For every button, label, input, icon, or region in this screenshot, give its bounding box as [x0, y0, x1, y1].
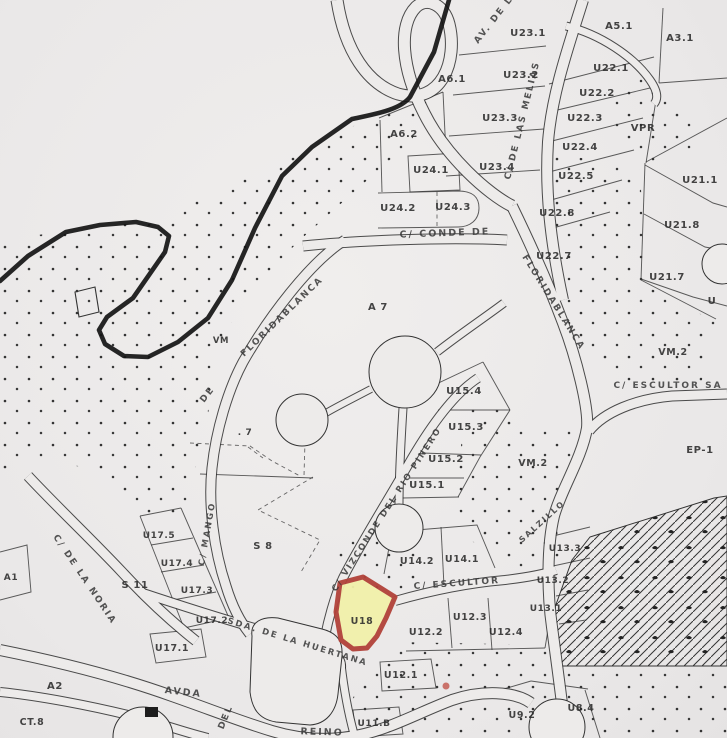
parcel-label: U22.2: [579, 88, 615, 99]
parcel-label: U23.3: [482, 113, 518, 124]
red-dot-marker: [443, 683, 450, 690]
parcel-label: U13.1: [530, 604, 563, 614]
parcel-label: U22.5: [558, 171, 594, 182]
parcel-label: U17.5: [143, 531, 176, 541]
parcel-label: VPR: [631, 123, 656, 134]
street-label: C/ ESCULTOR SA: [613, 381, 722, 391]
dashed-parcel-line: [258, 477, 320, 572]
parcel-label: A1: [4, 573, 18, 583]
parcel-label: U15.2: [428, 454, 464, 465]
parcel-label: U13.3: [549, 544, 582, 554]
parcel-label: A3.1: [666, 33, 694, 44]
parcel-label: U12.1: [384, 670, 418, 681]
parcel-label: U22.3: [567, 113, 603, 124]
building-marker: [145, 707, 158, 717]
dashed-parcel-line: [248, 447, 263, 458]
parcel-label: EP-1: [686, 445, 714, 456]
parcel-label: A5.1: [605, 21, 633, 32]
parcel-label: U15.1: [409, 480, 445, 491]
parcel-label: U17.3: [181, 586, 214, 596]
map-canvas: U23.1A5.1A3.1A6.1U22.1U23.2U22.2U23.3U22…: [0, 0, 727, 738]
parcel-label: . 7: [238, 428, 253, 438]
parcel-label: U17.2: [196, 616, 229, 626]
parcel-label: U15.3: [448, 422, 484, 433]
parcel-line: [488, 598, 492, 650]
parcel-label: U17.4: [161, 559, 194, 569]
highlighted-parcel-label: U18: [351, 616, 374, 627]
street-label: REINO: [300, 726, 344, 738]
parcel-label: U24.1: [413, 165, 449, 176]
roundabout-parcel: [369, 336, 441, 408]
parcel-line: [659, 78, 727, 83]
parcel-label: U11.B: [357, 719, 390, 729]
parcel-line: [483, 362, 510, 410]
parcel-label: U9.2: [509, 710, 536, 721]
parcel-label: U15.4: [446, 386, 482, 397]
parcel-label: U22.1: [593, 63, 629, 74]
parcel-line: [448, 598, 452, 648]
parcel-label: U8.4: [568, 703, 595, 714]
parcel-label: U17.1: [155, 643, 189, 654]
road-circle-connector-ne: [437, 303, 504, 352]
parcel-label: CT.8: [20, 717, 45, 728]
parcel-label: U22.4: [562, 142, 598, 153]
parcel-line: [553, 527, 590, 536]
parcel-label: A2: [47, 681, 63, 692]
parcel-label: U21.7: [649, 272, 685, 283]
roundabout-parcel: [702, 244, 727, 284]
parcel-label: S 8: [253, 541, 272, 552]
parcel-line: [459, 46, 546, 55]
street-label: C/ DE LA NORIA: [51, 533, 119, 627]
parcel-label: U24.2: [380, 203, 416, 214]
parcel-label: U22.7: [536, 251, 572, 262]
parcel-label: U22.8: [539, 208, 575, 219]
parcel-label: U12.4: [489, 627, 523, 638]
parcel-label: U14.2: [400, 556, 434, 567]
parcel-label: A 7: [368, 302, 388, 313]
roundabout-parcel: [276, 394, 328, 446]
parcel-line: [659, 8, 663, 83]
parcel-label: U24.3: [435, 202, 471, 213]
parcel-label: U12.3: [453, 612, 487, 623]
road-circle-connector-w: [326, 389, 371, 413]
parcel-label: S 11: [122, 580, 149, 591]
parcel-label: U13.2: [537, 576, 570, 586]
parcel-label: U21.8: [664, 220, 700, 231]
parcel-label: U12.2: [409, 627, 443, 638]
parcel-label: U21.1: [682, 175, 718, 186]
parcel-label: U: [708, 296, 717, 307]
map-scan: U23.1A5.1A3.1A6.1U22.1U23.2U22.2U23.3U22…: [0, 0, 727, 738]
parcel-line: [449, 129, 544, 136]
parcel-line: [200, 474, 313, 478]
parcel-label: VM: [213, 336, 229, 346]
parcel-label: U14.1: [445, 554, 479, 565]
parcel-label: A6.1: [438, 74, 466, 85]
parcel-line: [645, 165, 727, 207]
parcel-label: U23.1: [510, 28, 546, 39]
parcel-label: VM.2: [518, 458, 547, 469]
parcel-label: VM.2: [658, 347, 687, 358]
parcel-label: A6.2: [390, 129, 418, 140]
parcel-line: [402, 497, 459, 498]
parcel-line: [441, 527, 444, 586]
